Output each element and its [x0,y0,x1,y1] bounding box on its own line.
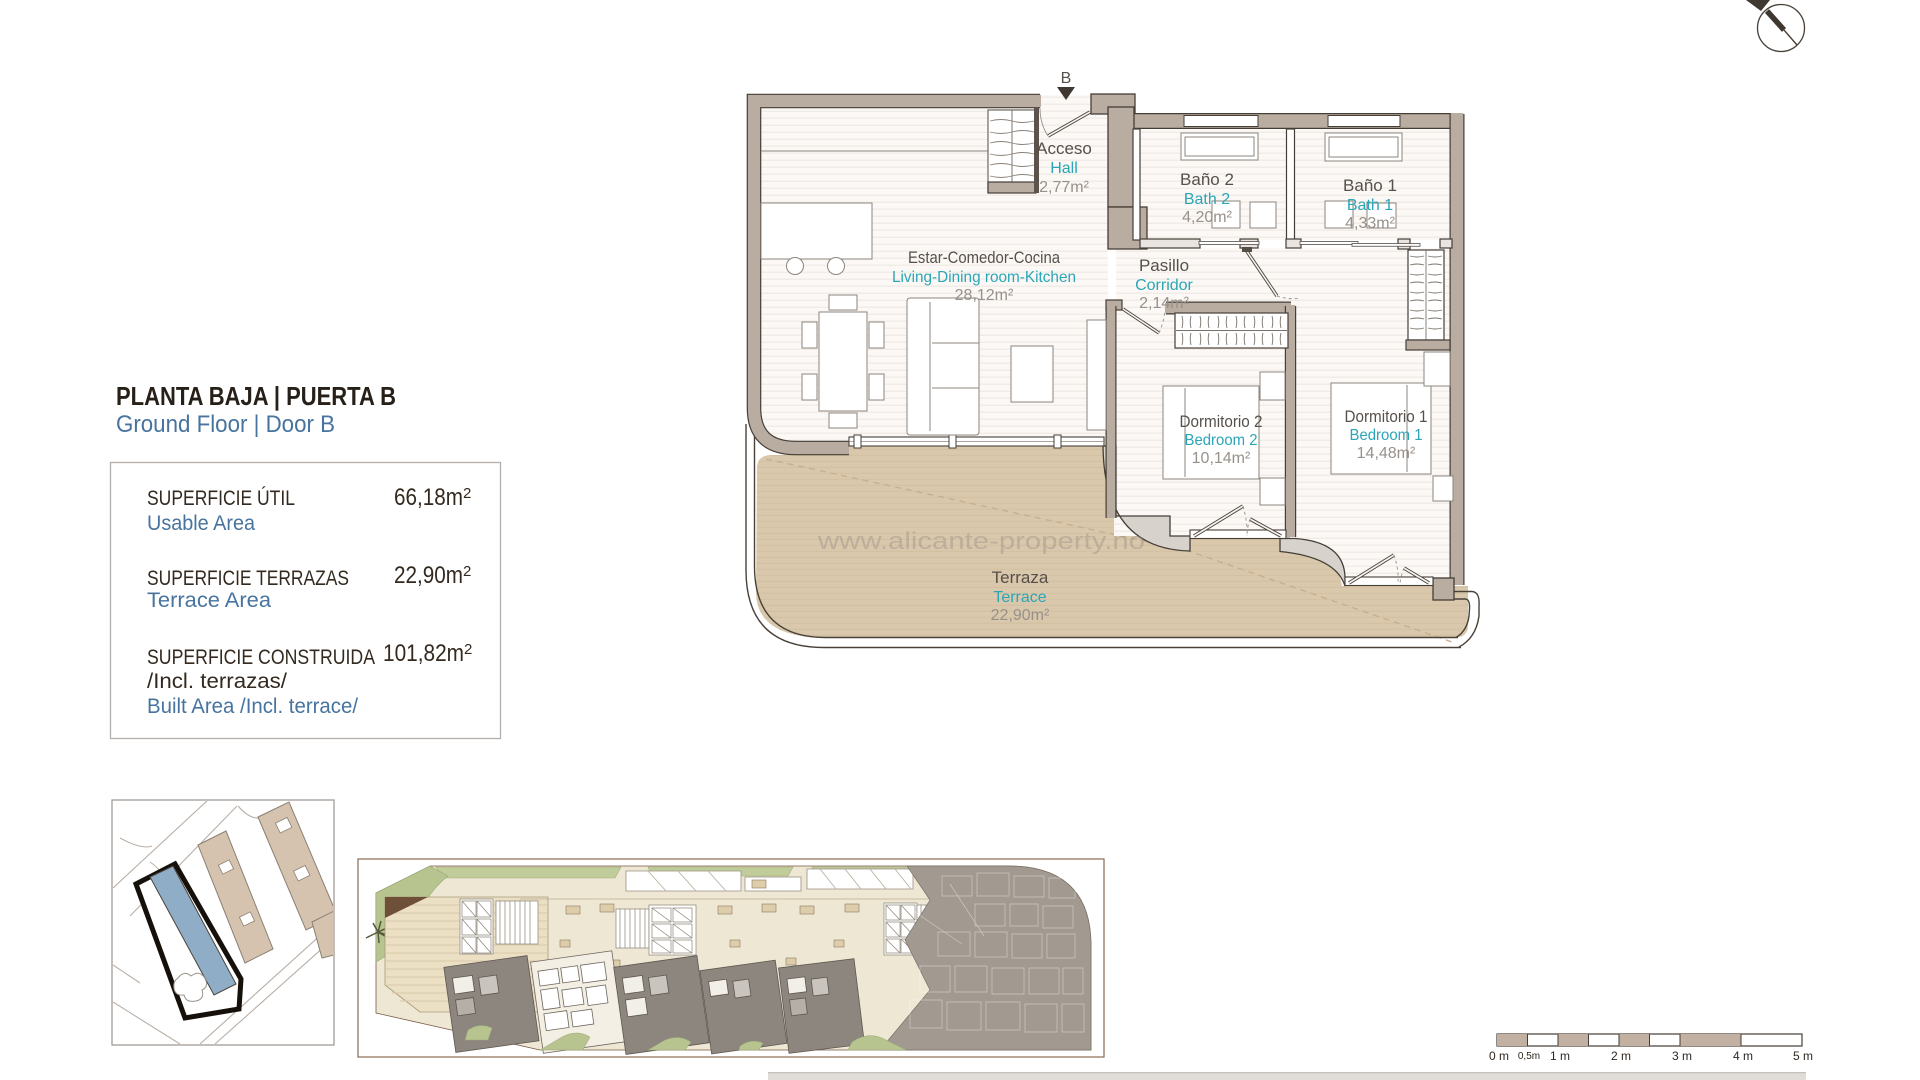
svg-text:66,18m2: 66,18m2 [394,484,471,511]
svg-text:2,77m²: 2,77m² [1039,179,1089,196]
svg-text:Terrace: Terrace [993,589,1046,606]
svg-text:Bath 2: Bath 2 [1184,191,1230,208]
svg-text:22,90m²: 22,90m² [991,607,1050,624]
svg-text:SUPERFICIE TERRAZAS: SUPERFICIE TERRAZAS [147,567,349,590]
svg-text:www.alicante-property.no: www.alicante-property.no [817,528,1145,555]
svg-text:Usable Area: Usable Area [147,512,255,535]
svg-text:PLANTA BAJA | PUERTA B: PLANTA BAJA | PUERTA B [116,381,396,411]
svg-text:Living-Dining room-Kitchen: Living-Dining room-Kitchen [892,269,1076,286]
svg-text:Dormitorio 1: Dormitorio 1 [1345,407,1428,426]
svg-text:Bedroom 2: Bedroom 2 [1185,432,1258,449]
svg-text:Hall: Hall [1050,160,1078,177]
svg-text:Baño 1: Baño 1 [1343,176,1397,195]
svg-text:Built Area /Incl. terrace/: Built Area /Incl. terrace/ [147,695,358,718]
svg-text:4,20m²: 4,20m² [1182,209,1232,226]
svg-text:SUPERFICIE CONSTRUIDA: SUPERFICIE CONSTRUIDA [147,646,375,669]
svg-text:4,33m²: 4,33m² [1345,215,1395,232]
svg-text:0 m: 0 m [1489,1049,1509,1063]
svg-text:101,82m2: 101,82m2 [383,640,472,667]
svg-text:Baño 2: Baño 2 [1180,170,1234,189]
svg-text:Dormitorio 2: Dormitorio 2 [1180,412,1263,431]
svg-text:2 m: 2 m [1611,1049,1631,1063]
svg-text:Pasillo: Pasillo [1139,256,1189,275]
svg-text:10,14m²: 10,14m² [1192,450,1251,467]
svg-text:Bath 1: Bath 1 [1347,197,1393,214]
svg-text:Terrace Area: Terrace Area [147,589,271,612]
svg-text:B: B [1061,70,1072,87]
svg-text:Estar-Comedor-Cocina: Estar-Comedor-Cocina [908,248,1060,267]
svg-text:28,12m²: 28,12m² [955,287,1014,304]
svg-text:Bedroom 1: Bedroom 1 [1350,427,1423,444]
svg-text:2,14m²: 2,14m² [1139,295,1189,312]
svg-text:0,5m: 0,5m [1518,1051,1540,1062]
svg-text:4 m: 4 m [1733,1049,1753,1063]
svg-text:1 m: 1 m [1550,1049,1570,1063]
svg-text:Ground Floor | Door B: Ground Floor | Door B [116,411,335,438]
svg-text:3 m: 3 m [1672,1049,1692,1063]
svg-text:Acceso: Acceso [1036,139,1092,158]
svg-text:5 m: 5 m [1793,1049,1813,1063]
svg-text:22,90m2: 22,90m2 [394,562,471,589]
svg-text:Corridor: Corridor [1135,277,1193,294]
svg-text:14,48m²: 14,48m² [1357,445,1416,462]
svg-text:Terraza: Terraza [992,568,1049,587]
svg-text:/Incl. terrazas/: /Incl. terrazas/ [147,670,287,693]
svg-text:SUPERFICIE ÚTIL: SUPERFICIE ÚTIL [147,487,295,510]
